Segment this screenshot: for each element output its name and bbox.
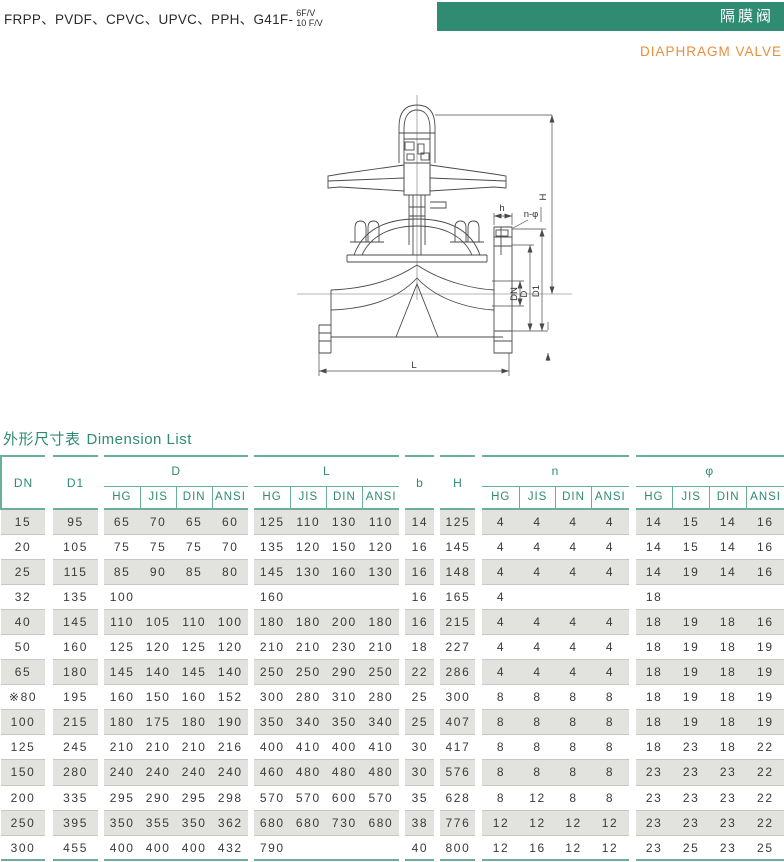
table-cell: 110 [290, 509, 326, 534]
table-cell [556, 584, 592, 609]
table-cell: 245 [53, 735, 98, 760]
table-cell: 480 [326, 760, 362, 785]
table-cell: 25 [405, 685, 434, 710]
table-cell: 120 [362, 534, 399, 559]
table-cell: 23 [710, 835, 747, 860]
table-cell: 8 [519, 685, 555, 710]
table-cell: 22 [747, 810, 784, 835]
table-cell: 140 [212, 660, 248, 685]
table-cell: 14 [636, 509, 673, 534]
table-cell [592, 584, 629, 609]
table-cell: 776 [440, 810, 475, 835]
col-group-l: L [254, 456, 399, 486]
table-cell: 12 [556, 835, 592, 860]
table-row: ※801951601501601523002803102802530088881… [1, 685, 784, 710]
table-cell: 85 [176, 559, 212, 584]
column-gap [45, 660, 53, 685]
table-cell: 8 [519, 710, 555, 735]
column-gap [475, 835, 482, 860]
table-cell: 417 [440, 735, 475, 760]
table-cell: 110 [176, 609, 212, 634]
table-cell: 310 [326, 685, 362, 710]
table-cell: 130 [290, 559, 326, 584]
table-cell: 350 [254, 710, 290, 735]
table-cell [519, 584, 555, 609]
table-cell: 8 [592, 710, 629, 735]
column-gap [45, 609, 53, 634]
table-cell: 23 [710, 785, 747, 810]
table-cell: 350 [326, 710, 362, 735]
table-cell: 70 [212, 534, 248, 559]
table-cell: 410 [362, 735, 399, 760]
table-cell: 340 [362, 710, 399, 735]
std-header: DIN [326, 486, 362, 509]
table-cell: 8 [592, 685, 629, 710]
table-cell: 19 [747, 660, 784, 685]
product-codes-text: FRPP、PVDF、CPVC、UPVC、PPH、G41F- [4, 8, 293, 28]
table-cell: 215 [440, 609, 475, 634]
table-cell: 295 [104, 785, 140, 810]
table-cell: 4 [482, 609, 519, 634]
table-cell: 730 [326, 810, 362, 835]
table-cell: 23 [636, 785, 673, 810]
table-cell: 19 [747, 710, 784, 735]
table-cell: 4 [482, 534, 519, 559]
column-gap [45, 456, 53, 509]
table-cell [290, 835, 326, 860]
table-cell: 19 [673, 660, 710, 685]
column-gap [45, 835, 53, 860]
table-cell: 4 [519, 534, 555, 559]
product-codes: FRPP、PVDF、CPVC、UPVC、PPH、G41F- 6F/V 10 F/… [4, 8, 323, 28]
table-cell: 362 [212, 810, 248, 835]
table-cell: 4 [519, 660, 555, 685]
table-cell: 160 [104, 685, 140, 710]
table-cell: 19 [747, 685, 784, 710]
table-cell: 145 [440, 534, 475, 559]
table-cell: 19 [673, 559, 710, 584]
table-cell: 60 [212, 509, 248, 534]
table-cell: 90 [140, 559, 176, 584]
table-cell: 22 [747, 785, 784, 810]
column-gap [629, 584, 636, 609]
table-cell: 18 [710, 735, 747, 760]
table-cell: 25 [405, 710, 434, 735]
table-cell: 23 [673, 760, 710, 785]
table-cell: 8 [519, 760, 555, 785]
table-cell: 190 [212, 710, 248, 735]
table-cell: 680 [362, 810, 399, 835]
table-cell: 110 [362, 509, 399, 534]
std-header: HG [636, 486, 673, 509]
table-cell: 14 [405, 509, 434, 534]
table-cell: 40 [1, 609, 45, 634]
table-cell: 298 [212, 785, 248, 810]
table-row: 2511585908580145130160130161484444141914… [1, 559, 784, 584]
std-header: ANSI [362, 486, 399, 509]
table-cell: 230 [326, 634, 362, 659]
section-title-en: Dimension List [87, 431, 192, 448]
table-cell: 8 [556, 760, 592, 785]
std-header: HG [254, 486, 290, 509]
column-gap [45, 534, 53, 559]
table-cell: 240 [140, 760, 176, 785]
table-cell: 180 [362, 609, 399, 634]
std-header: HG [482, 486, 519, 509]
table-cell: 100 [212, 609, 248, 634]
table-cell: 12 [519, 785, 555, 810]
table-cell: 110 [104, 609, 140, 634]
table-cell: 19 [673, 634, 710, 659]
column-gap [475, 760, 482, 785]
table-cell: 22 [747, 735, 784, 760]
column-gap [629, 634, 636, 659]
column-gap [475, 509, 482, 534]
col-header-d1: D1 [53, 456, 98, 509]
table-cell: 335 [53, 785, 98, 810]
table-cell: 23 [673, 810, 710, 835]
table-row: 2503953503553503626806807306803877612121… [1, 810, 784, 835]
title-banner-en: DIAPHRAGM VALVE [640, 44, 782, 59]
table-cell [212, 584, 248, 609]
table-cell: 4 [519, 509, 555, 534]
table-cell: 120 [140, 634, 176, 659]
table-cell: 210 [254, 634, 290, 659]
table-cell: 23 [673, 785, 710, 810]
table-cell: 150 [326, 534, 362, 559]
table-cell: 85 [104, 559, 140, 584]
table-cell: 75 [176, 534, 212, 559]
table-cell: 18 [636, 634, 673, 659]
table-cell: 18 [636, 735, 673, 760]
table-cell: 18 [710, 710, 747, 735]
column-gap [629, 810, 636, 835]
table-cell: 18 [636, 660, 673, 685]
table-cell: 200 [326, 609, 362, 634]
std-header: JIS [519, 486, 555, 509]
table-cell: 300 [440, 685, 475, 710]
table-cell: 200 [1, 785, 45, 810]
column-gap [45, 509, 53, 534]
table-cell: 570 [362, 785, 399, 810]
table-cell: 115 [53, 559, 98, 584]
table-cell: 23 [710, 760, 747, 785]
table-row: 1002151801751801903503403503402540788881… [1, 710, 784, 735]
table-cell: 80 [212, 559, 248, 584]
column-gap [629, 534, 636, 559]
table-cell: 25 [1, 559, 45, 584]
column-gap [629, 609, 636, 634]
table-cell: 8 [556, 685, 592, 710]
dimension-table-body: 1595657065601251101301101412544441415141… [1, 509, 784, 860]
table-cell: 180 [290, 609, 326, 634]
table-cell: 100 [104, 584, 140, 609]
table-cell: 160 [53, 634, 98, 659]
table-cell: 16 [405, 609, 434, 634]
table-cell: 628 [440, 785, 475, 810]
column-gap [45, 634, 53, 659]
table-cell: 14 [636, 534, 673, 559]
table-cell: 210 [104, 735, 140, 760]
std-header: DIN [710, 486, 747, 509]
table-cell: 105 [140, 609, 176, 634]
table-cell: 50 [1, 634, 45, 659]
table-cell: 18 [710, 609, 747, 634]
table-cell: 12 [592, 810, 629, 835]
table-cell: 22 [405, 660, 434, 685]
table-cell: 570 [290, 785, 326, 810]
model-bottom: 10 F/V [296, 18, 323, 28]
table-cell: 15 [673, 534, 710, 559]
table-cell: 4 [592, 509, 629, 534]
table-cell: 160 [254, 584, 290, 609]
table-cell: 120 [212, 634, 248, 659]
column-gap [475, 685, 482, 710]
table-cell: 350 [176, 810, 212, 835]
table-cell: 4 [592, 534, 629, 559]
table-cell: 8 [482, 785, 519, 810]
table-cell: 295 [176, 785, 212, 810]
table-cell: 8 [482, 735, 519, 760]
table-cell: 355 [140, 810, 176, 835]
table-cell: 19 [673, 710, 710, 735]
table-cell: 8 [592, 735, 629, 760]
std-header: ANSI [592, 486, 629, 509]
table-cell: 16 [747, 559, 784, 584]
table-cell: 400 [176, 835, 212, 860]
dim-label-h: h [499, 203, 504, 214]
table-cell: 240 [176, 760, 212, 785]
table-cell: 18 [636, 685, 673, 710]
table-cell: 160 [326, 559, 362, 584]
dim-label-D1: D1 [531, 285, 542, 297]
table-cell: 400 [326, 735, 362, 760]
table-cell: 8 [482, 760, 519, 785]
column-gap [45, 710, 53, 735]
table-cell: 165 [440, 584, 475, 609]
table-cell: 250 [1, 810, 45, 835]
table-cell: 210 [140, 735, 176, 760]
std-header: ANSI [212, 486, 248, 509]
table-row: 1502802402402402404604804804803057688882… [1, 760, 784, 785]
column-gap [629, 456, 636, 509]
table-cell: 250 [254, 660, 290, 685]
valve-body [319, 219, 512, 353]
std-header: JIS [290, 486, 326, 509]
catalog-page: FRPP、PVDF、CPVC、UPVC、PPH、G41F- 6F/V 10 F/… [0, 0, 784, 862]
table-cell: 8 [556, 735, 592, 760]
std-header: DIN [176, 486, 212, 509]
table-cell: 215 [53, 710, 98, 735]
table-cell: 140 [140, 660, 176, 685]
table-cell: 4 [556, 609, 592, 634]
column-gap [475, 710, 482, 735]
std-header: HG [104, 486, 140, 509]
column-gap [629, 660, 636, 685]
table-cell: 4 [482, 509, 519, 534]
table-cell: 30 [405, 760, 434, 785]
std-header: JIS [673, 486, 710, 509]
table-cell: 180 [53, 660, 98, 685]
table-row: 4014511010511010018018020018016215444418… [1, 609, 784, 634]
table-cell: 300 [1, 835, 45, 860]
table-cell: 340 [290, 710, 326, 735]
column-gap [475, 660, 482, 685]
dimension-table: DN D1 D L b H n φ HG [0, 455, 784, 861]
table-cell: 195 [53, 685, 98, 710]
table-cell: 240 [104, 760, 140, 785]
table-cell: 70 [140, 509, 176, 534]
table-cell: 19 [747, 634, 784, 659]
table-cell: 65 [176, 509, 212, 534]
table-row: 6518014514014514025025029025022286444418… [1, 660, 784, 685]
table-cell: 570 [254, 785, 290, 810]
table-cell: 16 [747, 609, 784, 634]
table-cell: 8 [556, 785, 592, 810]
table-cell: 400 [254, 735, 290, 760]
table-cell: 19 [673, 609, 710, 634]
table-cell: 30 [405, 735, 434, 760]
table-cell: 12 [592, 835, 629, 860]
column-gap [475, 810, 482, 835]
table-cell: 16 [405, 584, 434, 609]
table-cell: 300 [254, 685, 290, 710]
table-cell: 18 [710, 634, 747, 659]
table-cell [710, 584, 747, 609]
column-gap [45, 685, 53, 710]
table-cell: 600 [326, 785, 362, 810]
table-cell: 18 [636, 609, 673, 634]
table-cell: 125 [1, 735, 45, 760]
table-cell: 125 [176, 634, 212, 659]
table-cell: 16 [405, 559, 434, 584]
table-cell: 150 [1, 760, 45, 785]
table-cell: 4 [519, 559, 555, 584]
table-cell: 8 [482, 685, 519, 710]
table-cell: ※80 [1, 685, 45, 710]
table-cell: 18 [710, 685, 747, 710]
table-cell [747, 584, 784, 609]
table-cell: 135 [254, 534, 290, 559]
column-gap [45, 785, 53, 810]
table-cell: 14 [710, 534, 747, 559]
column-gap [629, 710, 636, 735]
table-cell: 407 [440, 710, 475, 735]
column-gap [45, 810, 53, 835]
table-cell: 23 [636, 760, 673, 785]
table-cell: 148 [440, 559, 475, 584]
table-cell [362, 835, 399, 860]
section-title-cn: 外形尺寸表 [3, 431, 81, 448]
table-row: 1252452102102102164004104004103041788881… [1, 735, 784, 760]
table-cell: 16 [747, 534, 784, 559]
table-cell [140, 584, 176, 609]
table-cell: 14 [710, 509, 747, 534]
table-cell: 280 [362, 685, 399, 710]
table-cell: 32 [1, 584, 45, 609]
table-cell: 680 [290, 810, 326, 835]
column-gap [475, 735, 482, 760]
table-cell: 286 [440, 660, 475, 685]
table-cell: 16 [747, 509, 784, 534]
table-cell: 4 [556, 559, 592, 584]
table-cell: 16 [519, 835, 555, 860]
table-cell [362, 584, 399, 609]
table-row: 2003352952902952985705706005703562881288… [1, 785, 784, 810]
table-cell: 4 [519, 634, 555, 659]
table-cell: 65 [1, 660, 45, 685]
table-cell: 95 [53, 509, 98, 534]
std-header: DIN [556, 486, 592, 509]
valve-stem [409, 195, 446, 255]
section-title: 外形尺寸表Dimension List [3, 428, 192, 449]
table-cell: 210 [290, 634, 326, 659]
table-cell: 395 [53, 810, 98, 835]
table-cell [290, 584, 326, 609]
table-cell: 4 [556, 509, 592, 534]
table-cell: 4 [519, 609, 555, 634]
col-group-n: n [482, 456, 628, 486]
table-cell: 15 [673, 509, 710, 534]
table-cell: 180 [254, 609, 290, 634]
table-cell [326, 584, 362, 609]
table-cell: 16 [405, 534, 434, 559]
table-cell: 8 [519, 735, 555, 760]
col-header-h: H [440, 456, 475, 509]
table-cell: 145 [104, 660, 140, 685]
table-cell: 35 [405, 785, 434, 810]
column-gap [45, 735, 53, 760]
table-cell: 38 [405, 810, 434, 835]
table-cell: 65 [104, 509, 140, 534]
table-cell: 125 [104, 634, 140, 659]
table-cell: 23 [636, 810, 673, 835]
table-cell: 23 [636, 835, 673, 860]
column-gap [629, 685, 636, 710]
table-cell: 210 [176, 735, 212, 760]
table-cell: 8 [592, 785, 629, 810]
table-cell: 130 [362, 559, 399, 584]
table-cell: 800 [440, 835, 475, 860]
column-gap [45, 584, 53, 609]
table-cell: 160 [176, 685, 212, 710]
table-cell: 120 [290, 534, 326, 559]
dim-label-H: H [538, 193, 549, 200]
table-cell: 680 [254, 810, 290, 835]
table-cell: 4 [592, 634, 629, 659]
table-cell [326, 835, 362, 860]
table-cell: 4 [482, 660, 519, 685]
table-row: 2010575757570135120150120161454444141514… [1, 534, 784, 559]
column-gap [629, 509, 636, 534]
column-gap [45, 760, 53, 785]
column-gap [475, 534, 482, 559]
table-cell: 152 [212, 685, 248, 710]
table-cell: 145 [254, 559, 290, 584]
table-cell: 280 [290, 685, 326, 710]
table-cell: 4 [482, 634, 519, 659]
table-cell: 250 [362, 660, 399, 685]
table-cell: 4 [592, 609, 629, 634]
model-fraction: 6F/V 10 F/V [296, 8, 323, 28]
table-cell: 180 [104, 710, 140, 735]
table-cell: 290 [140, 785, 176, 810]
table-cell: 432 [212, 835, 248, 860]
col-group-phi: φ [636, 456, 784, 486]
table-cell: 150 [140, 685, 176, 710]
column-gap [475, 559, 482, 584]
table-cell: 125 [254, 509, 290, 534]
